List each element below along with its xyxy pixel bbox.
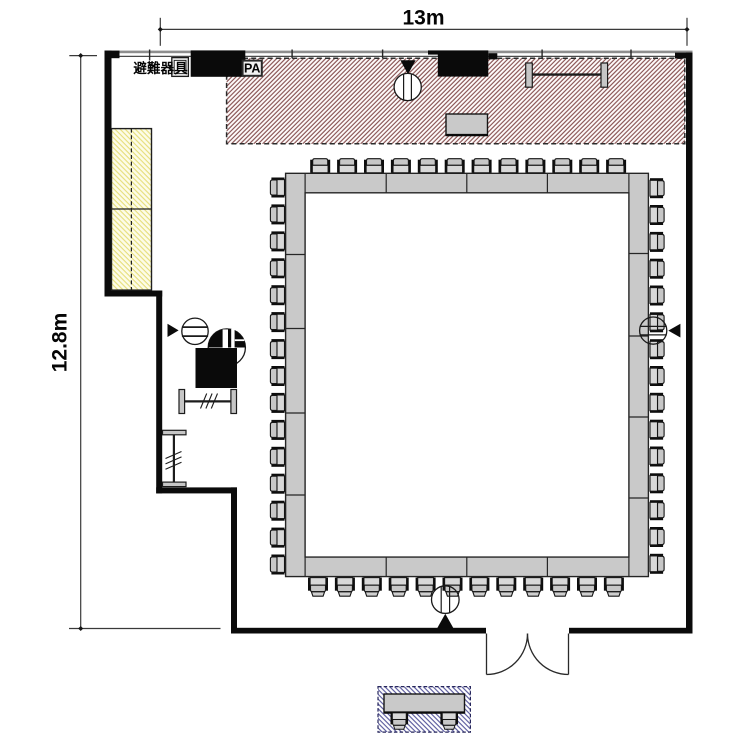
svg-text:避難器具: 避難器具 [133,60,188,76]
svg-text:12.8m: 12.8m [49,313,72,373]
svg-text:13m: 13m [402,7,444,30]
svg-text:PA: PA [244,61,260,75]
